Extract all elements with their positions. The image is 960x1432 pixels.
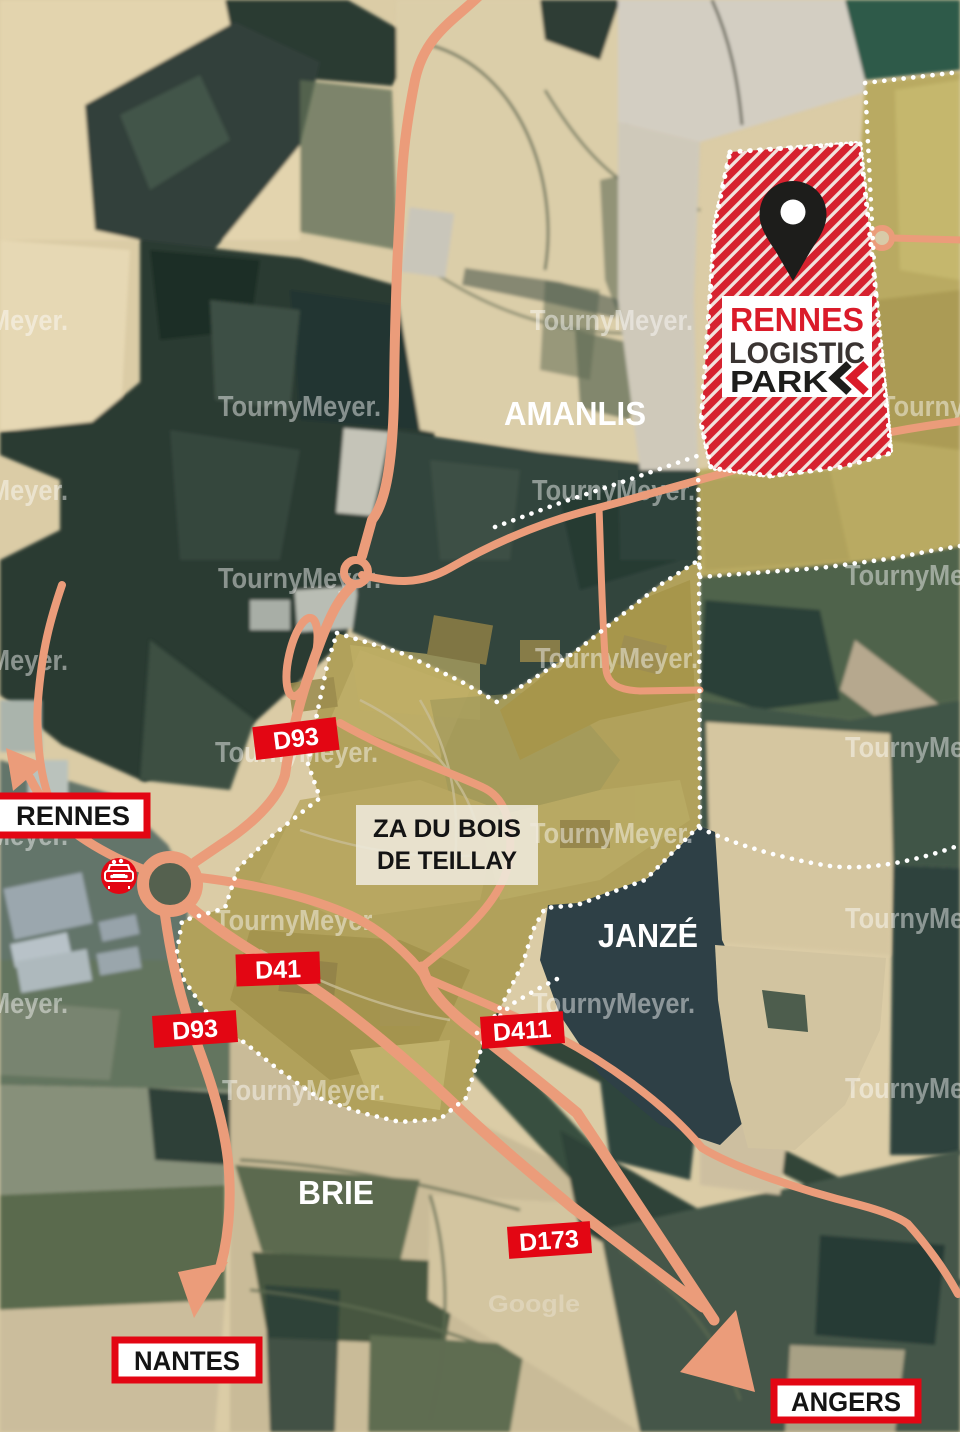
svg-text:TournyMeyer.: TournyMeyer. [845, 903, 960, 935]
svg-text:TournyMeyer.: TournyMeyer. [845, 1073, 960, 1105]
svg-text:TournyMeyer.: TournyMeyer. [0, 305, 68, 337]
svg-text:RENNES: RENNES [730, 301, 864, 338]
svg-text:DE TEILLAY: DE TEILLAY [377, 847, 517, 875]
svg-text:TournyMeyer.: TournyMeyer. [880, 391, 960, 423]
svg-text:D93: D93 [171, 1014, 219, 1045]
svg-text:D173: D173 [518, 1225, 580, 1257]
svg-text:TournyMeyer.: TournyMeyer. [0, 645, 68, 677]
svg-text:TournyMeyer.: TournyMeyer. [535, 643, 698, 675]
svg-text:ZA DU BOIS: ZA DU BOIS [373, 815, 521, 843]
svg-text:D93: D93 [272, 722, 321, 755]
svg-text:JANZÉ: JANZÉ [598, 917, 698, 954]
svg-text:TournyMeyer.: TournyMeyer. [218, 391, 381, 423]
svg-text:AMANLIS: AMANLIS [504, 395, 646, 432]
svg-text:TournyMeyer.: TournyMeyer. [0, 988, 68, 1020]
svg-text:TournyMeyer.: TournyMeyer. [222, 1075, 385, 1107]
svg-text:PARK: PARK [730, 364, 829, 399]
svg-text:TournyMeyer.: TournyMeyer. [218, 563, 381, 595]
svg-text:TournyMeyer.: TournyMeyer. [530, 305, 693, 337]
svg-text:Google: Google [488, 1291, 580, 1318]
svg-text:D41: D41 [255, 955, 302, 985]
svg-text:RENNES: RENNES [16, 801, 130, 831]
svg-text:TournyMeyer.: TournyMeyer. [530, 818, 693, 850]
svg-text:NANTES: NANTES [134, 1346, 240, 1376]
svg-text:BRIE: BRIE [298, 1174, 374, 1211]
svg-text:D411: D411 [492, 1015, 552, 1047]
svg-text:ANGERS: ANGERS [791, 1387, 901, 1417]
svg-text:TournyMeyer.: TournyMeyer. [0, 475, 68, 507]
svg-text:TournyMeyer.: TournyMeyer. [845, 560, 960, 592]
svg-text:TournyMeyer.: TournyMeyer. [845, 732, 960, 764]
